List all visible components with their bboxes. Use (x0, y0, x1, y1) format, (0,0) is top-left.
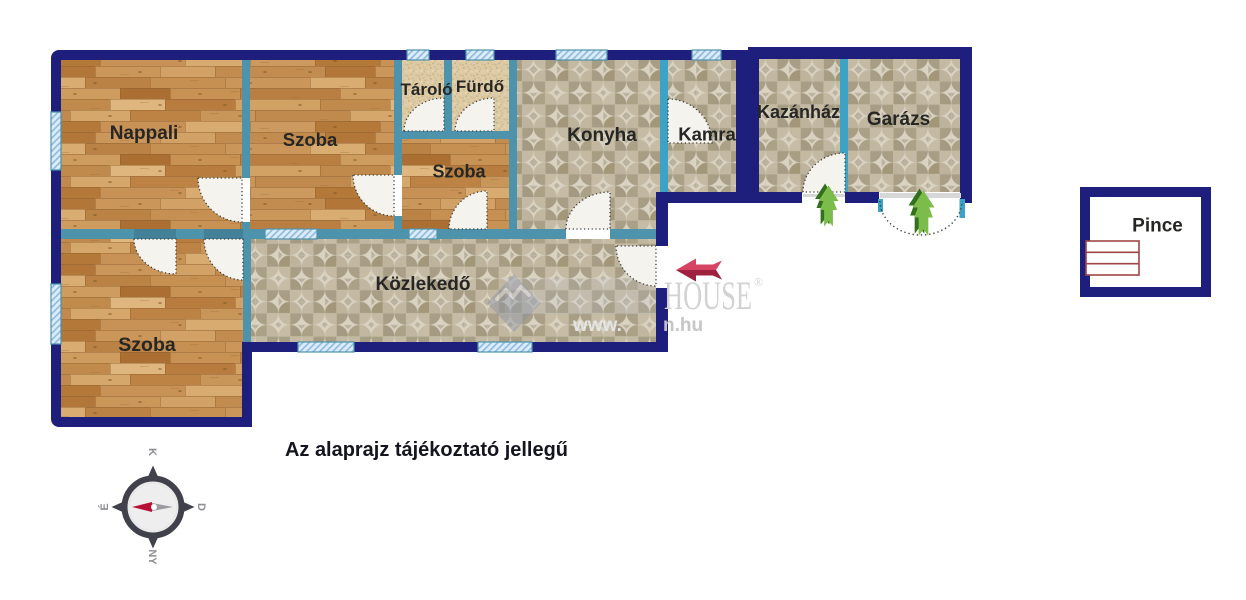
svg-text:Kazánház: Kazánház (757, 102, 840, 122)
svg-text:Konyha: Konyha (567, 125, 637, 146)
svg-text:n.hu: n.hu (663, 315, 703, 336)
svg-text:É: É (98, 503, 111, 510)
svg-text:Szoba: Szoba (283, 129, 338, 150)
svg-text:Nappali: Nappali (110, 123, 179, 144)
svg-text:NY: NY (146, 549, 158, 565)
svg-text:Garázs: Garázs (867, 109, 930, 130)
svg-text:K: K (146, 448, 158, 456)
svg-text:Közlekedő: Közlekedő (375, 274, 470, 295)
svg-text:Fürdő: Fürdő (456, 77, 504, 96)
svg-text:Pince: Pince (1132, 216, 1183, 237)
svg-text:®: ® (754, 275, 763, 289)
svg-text:Szoba: Szoba (432, 162, 486, 182)
svg-text:Tároló: Tároló (401, 80, 453, 99)
svg-text:Kamra: Kamra (678, 124, 736, 145)
svg-text:HOUSE: HOUSE (664, 273, 752, 318)
svg-text:Szoba: Szoba (118, 334, 176, 356)
svg-text:Az alaprajz tájékoztató jelleg: Az alaprajz tájékoztató jellegű (285, 439, 568, 461)
svg-text:D: D (195, 503, 207, 511)
svg-text:www.: www. (572, 315, 622, 336)
